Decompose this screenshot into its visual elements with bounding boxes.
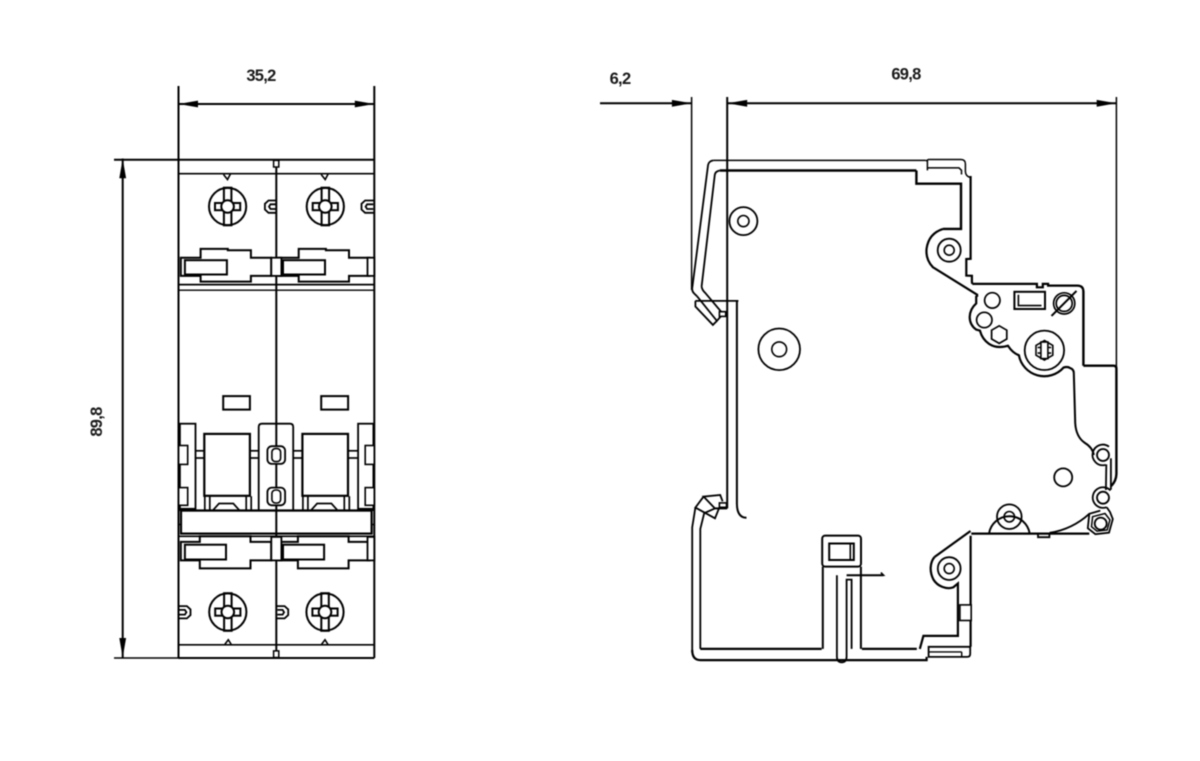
svg-text:69,8: 69,8 <box>891 66 921 84</box>
svg-text:35,2: 35,2 <box>246 67 276 85</box>
svg-text:6,2: 6,2 <box>610 70 631 88</box>
svg-text:89,8: 89,8 <box>88 407 106 437</box>
